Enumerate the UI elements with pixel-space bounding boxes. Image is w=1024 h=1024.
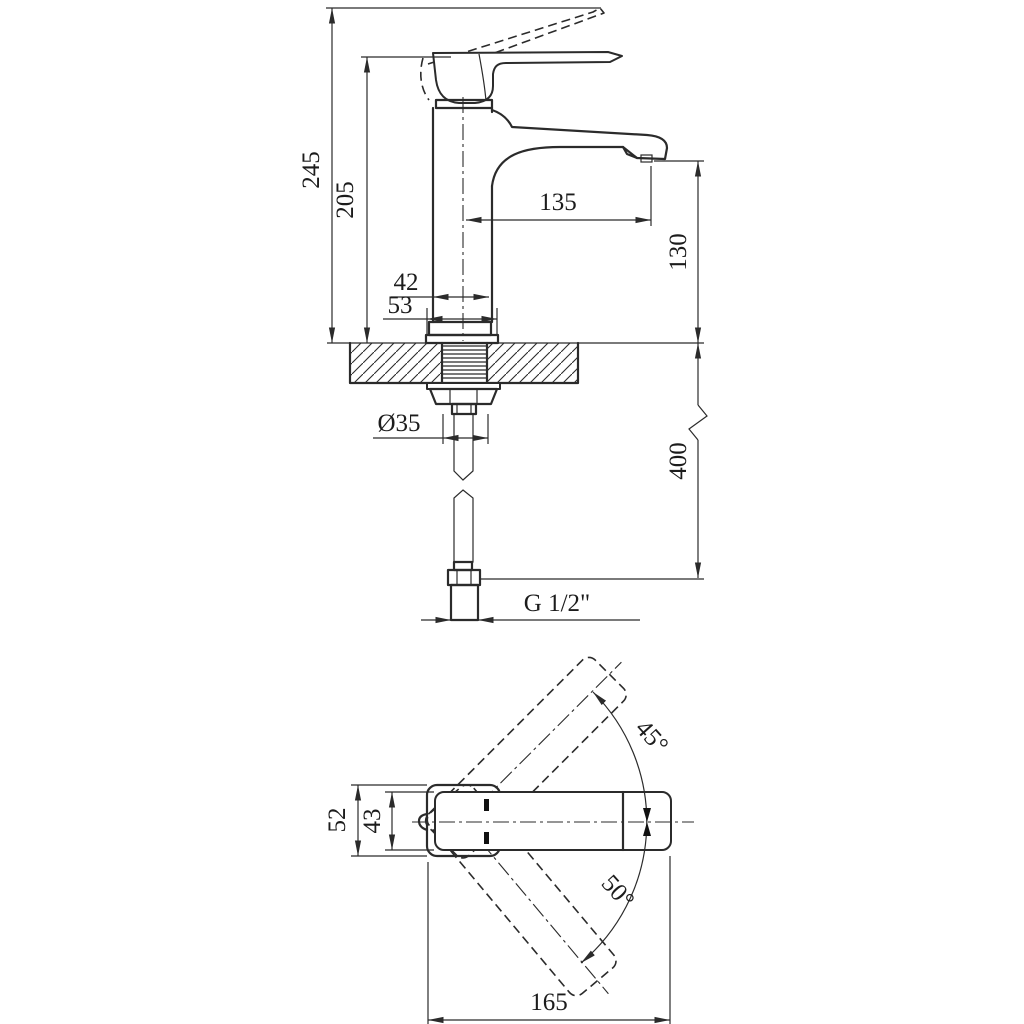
hose-lower-segment: [454, 490, 473, 562]
threaded-shank: [442, 343, 487, 383]
counter-section: [327, 343, 704, 383]
hose-connector: [452, 404, 476, 414]
mounting-nut: [427, 383, 500, 404]
flexible-hose: [454, 414, 473, 562]
spout-arm: [492, 110, 667, 186]
base-flange: [429, 322, 491, 335]
dim-label-53: 53: [388, 292, 413, 319]
handle-lever: [433, 52, 622, 103]
handle-top-outline: [435, 792, 671, 850]
dim-label-52: 52: [324, 808, 351, 833]
side-view: 245 205 135 130 42 53: [298, 8, 707, 620]
top-view: 45° 50° 52 43 165: [324, 642, 694, 1024]
dimension-165: 165: [428, 856, 670, 1024]
dimension-43: 43: [359, 792, 434, 850]
break-symbol: [689, 405, 707, 440]
dim-label-50deg: 50°: [596, 870, 639, 914]
dim-label-o35: Ø35: [377, 410, 420, 437]
dim-label-205: 205: [332, 181, 359, 219]
dim-label-43: 43: [359, 809, 386, 834]
dim-label-165: 165: [530, 989, 568, 1016]
dimension-53: 53: [383, 292, 497, 334]
dim-label-130: 130: [665, 233, 692, 271]
counter-hatch-right: [487, 343, 578, 383]
dim-label-400: 400: [665, 442, 692, 480]
hose-upper-segment: [454, 414, 473, 480]
handle-index-mark-bottom: [484, 832, 489, 844]
handle-index-mark-top: [484, 799, 489, 811]
hose-end-fitting: [448, 562, 480, 620]
counter-hatch-left: [350, 343, 442, 383]
dim-label-245: 245: [298, 151, 325, 189]
dimension-thread-g12: G 1/2": [421, 590, 640, 620]
dim-label-g12: G 1/2": [524, 590, 590, 617]
technical-drawing-page: 245 205 135 130 42 53: [0, 0, 1024, 1024]
dim-label-135: 135: [539, 189, 577, 216]
dimension-130: 130: [654, 161, 704, 343]
dim-label-45deg: 45°: [630, 715, 673, 759]
base-plate: [426, 335, 498, 343]
faucet-drawing-svg: 245 205 135 130 42 53: [0, 0, 1024, 1024]
